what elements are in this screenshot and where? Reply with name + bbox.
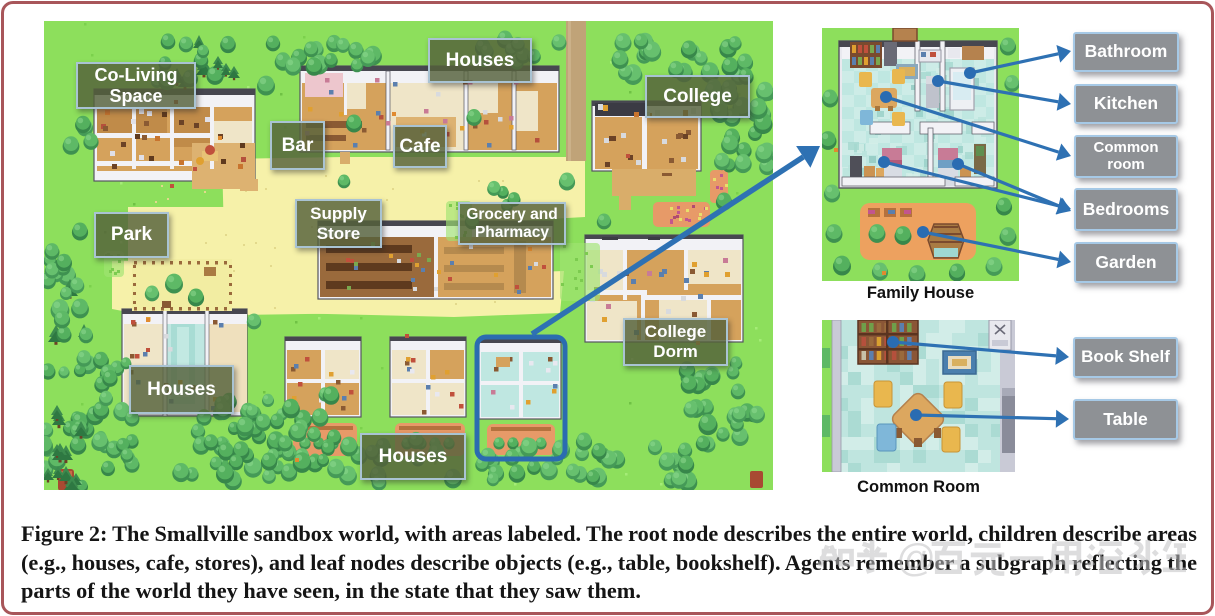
svg-text:@: @ — [896, 538, 936, 581]
